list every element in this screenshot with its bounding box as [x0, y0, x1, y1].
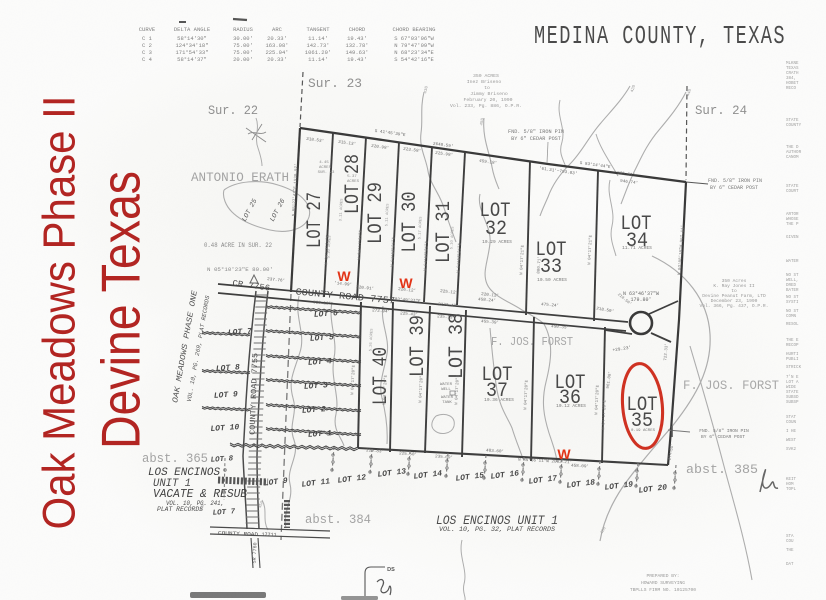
svg-text:Oak Meadows Phase II: Oak Meadows Phase II [34, 96, 85, 530]
svg-text:Devine Texas: Devine Texas [90, 171, 152, 449]
svg-text:W: W [337, 268, 351, 284]
svg-text:W: W [399, 275, 413, 291]
svg-text:W: W [557, 446, 571, 462]
